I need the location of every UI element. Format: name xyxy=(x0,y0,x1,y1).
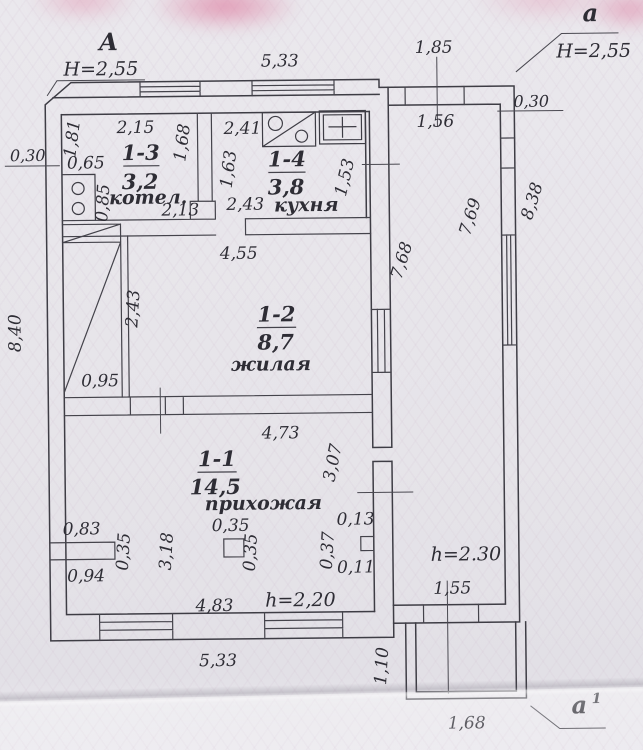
dim-r14-top: 2,41 xyxy=(222,119,261,139)
section-marker-A: А xyxy=(97,27,119,56)
dim-veranda-door: 1,55 xyxy=(433,578,471,598)
stove-icon xyxy=(319,111,365,144)
window-bottom-2 xyxy=(265,612,343,639)
dim-r12-left: 2,43 xyxy=(122,289,144,329)
window-top-2 xyxy=(252,80,334,96)
section-marker-leaders xyxy=(47,33,626,734)
dim-porch-depth: 1,10 xyxy=(371,646,393,685)
room-1-1-number: 1-1 xyxy=(198,446,236,471)
dim-stub-bottom: 0,94 xyxy=(67,566,105,586)
room-1-2-name: жилая xyxy=(231,353,311,376)
dim-veranda-inner: 7,69 xyxy=(455,196,485,238)
boiler-icon xyxy=(72,182,84,194)
dim-r13-right: 1,68 xyxy=(170,122,195,162)
height-veranda: h=2.30 xyxy=(431,543,502,566)
dim-bottom-main: 5,33 xyxy=(199,651,237,671)
dim-shaft-side: 0,37 xyxy=(317,531,339,570)
window-top-1 xyxy=(140,81,200,97)
room-1-3-number: 1-3 xyxy=(122,140,160,165)
dim-r11-right: 3,07 xyxy=(320,442,347,483)
dim-veranda-top-inner: 1,56 xyxy=(416,112,454,132)
boiler-icon xyxy=(72,202,84,214)
dim-r12-strip: 0,95 xyxy=(81,371,119,391)
dim-shaft-top: 0,13 xyxy=(337,509,375,529)
dim-r14-bottom: 2,43 xyxy=(225,195,264,215)
section-height-A: Н=2,55 xyxy=(62,58,138,81)
dim-r13-closet: 0,85 xyxy=(92,183,114,222)
dim-col-side: 0,35 xyxy=(240,533,262,572)
dim-shaft-bottom: 0,11 xyxy=(337,557,375,577)
dim-r13-left-low: 0,65 xyxy=(67,153,105,173)
dim-right-thickness: 0,30 xyxy=(513,92,549,111)
dim-r13-top: 2,15 xyxy=(115,118,154,138)
window-house-veranda xyxy=(371,309,391,372)
boiler-closet xyxy=(62,174,95,220)
window-bottom-1 xyxy=(100,614,173,641)
dim-top-main: 5,33 xyxy=(261,51,299,71)
dim-r11-top: 4,73 xyxy=(261,423,300,443)
sink-bowl-icon xyxy=(268,116,282,130)
height-hallway: h=2,20 xyxy=(265,589,336,612)
dim-left-total: 8,40 xyxy=(5,314,25,352)
dim-top-veranda: 1,85 xyxy=(415,38,453,58)
dim-r12-top: 4,55 xyxy=(219,244,258,264)
room-1-4-number: 1-4 xyxy=(268,146,306,171)
dim-right-total: 8,38 xyxy=(517,180,547,222)
sink-bowl-icon xyxy=(295,130,307,142)
floor-plan-drawing: А Н=2,55 а Н=2,55 1а 1-3 3,2 котел. 1-4 … xyxy=(0,0,643,750)
sink-icon xyxy=(262,112,315,147)
room-1-1-name: прихожая xyxy=(205,492,322,515)
dim-stub-width: 0,35 xyxy=(113,532,135,571)
dim-r11-bottom: 4,83 xyxy=(194,596,233,616)
dim-left-thickness: 0,30 xyxy=(10,146,46,165)
dim-house-veranda-wall: 7,68 xyxy=(387,239,417,281)
dim-r14-right: 1,53 xyxy=(331,157,359,198)
dim-stub-top: 0,83 xyxy=(63,519,101,539)
room-1-2-area: 8,7 xyxy=(256,329,294,354)
room-1-4-name: кухня xyxy=(274,194,339,217)
dim-r14-left: 1,63 xyxy=(217,149,242,189)
room-1-2-number: 1-2 xyxy=(257,301,295,326)
scanned-floor-plan-sheet: А Н=2,55 а Н=2,55 1а 1-3 3,2 котел. 1-4 … xyxy=(0,0,643,750)
dim-r13-bottom: 2,13 xyxy=(160,200,199,220)
section-height-a: Н=2,55 xyxy=(555,40,631,63)
house-veranda-wall xyxy=(365,87,394,623)
section-marker-a: а xyxy=(582,0,598,27)
window-veranda-right xyxy=(502,235,517,345)
dim-r11-mid: 3,18 xyxy=(156,532,178,571)
